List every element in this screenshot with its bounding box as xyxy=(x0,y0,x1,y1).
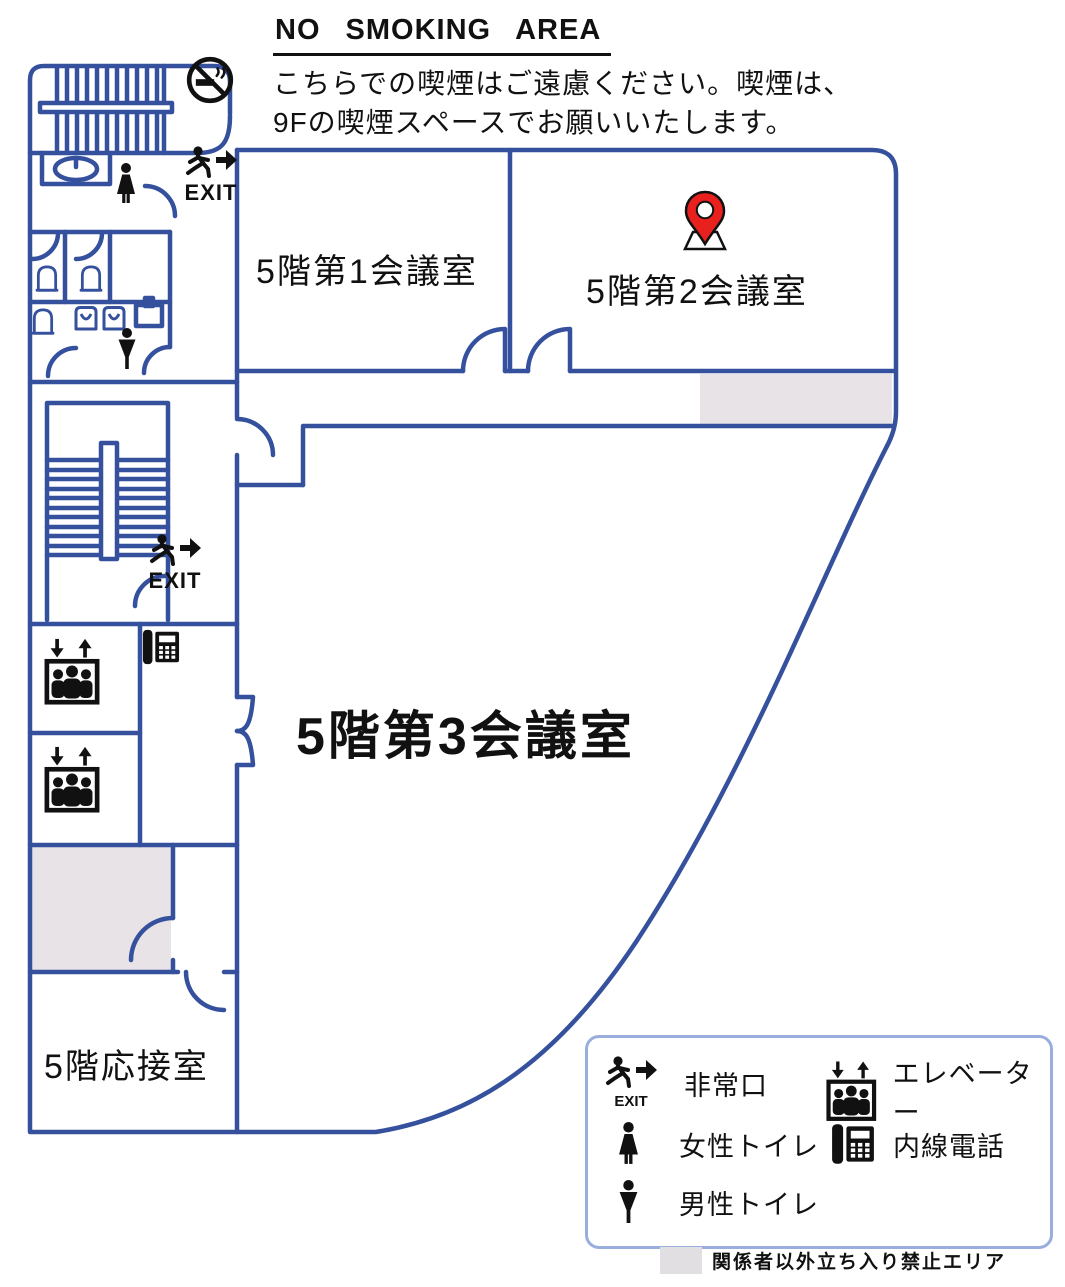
phone-icon xyxy=(143,630,179,664)
room2-label: 5階第2会議室 xyxy=(586,264,808,313)
legend-label: 女性トイレ xyxy=(679,1125,819,1164)
exit-text: EXIT xyxy=(146,568,204,594)
toilet-fixture xyxy=(36,267,59,290)
toilet-fixture xyxy=(80,267,103,290)
legend-item-elevator: エレベーター xyxy=(826,1052,1050,1130)
exit-text: EXIT xyxy=(182,180,240,206)
legend-label: 内線電話 xyxy=(893,1125,1005,1164)
elevator-icon xyxy=(47,639,97,702)
restricted-room-area xyxy=(32,847,171,970)
no-smoking-description: こちらでの喫煙はご遠慮ください。喫煙は、 9Fの喫煙スペースでお願いいたします。 xyxy=(273,64,852,142)
walls xyxy=(30,66,896,1132)
restricted-area-swatch xyxy=(660,1247,702,1274)
elevator-icon xyxy=(47,747,97,810)
male-toilet-icon xyxy=(618,1180,639,1224)
legend: EXIT 非常口 エレベーター 女性トイレ 内線電話 男性トイレ xyxy=(585,1035,1053,1249)
page-title: NO SMOKING AREA xyxy=(273,14,611,56)
room3-label: 5階第3会議室 xyxy=(296,694,635,769)
floor-map-page: NO SMOKING AREA こちらでの喫煙はご遠慮ください。喫煙は、 9Fの… xyxy=(0,0,1065,1287)
phone-icon xyxy=(831,1122,875,1166)
upper-stairs xyxy=(40,66,172,153)
toilet-fixture xyxy=(32,310,55,333)
legend-label: 非常口 xyxy=(684,1064,768,1103)
elevator-icon xyxy=(826,1059,877,1123)
description-line-2: 9Fの喫煙スペースでお願いいたします。 xyxy=(273,103,852,142)
legend-item-phone: 内線電話 xyxy=(831,1122,1005,1166)
emergency-exit-icon: EXIT xyxy=(604,1056,658,1110)
description-line-1: こちらでの喫煙はご遠慮ください。喫煙は、 xyxy=(273,64,852,103)
restricted-areas xyxy=(32,374,892,970)
legend-item-female-toilet: 女性トイレ xyxy=(618,1122,819,1166)
location-pin-icon xyxy=(685,192,725,249)
female-toilet-icon xyxy=(117,163,135,203)
male-toilet-icon xyxy=(119,328,136,369)
restricted-area-note: 関係者以外立ち入り禁止エリア xyxy=(660,1247,1006,1274)
room1-label: 5階第1会議室 xyxy=(256,244,478,293)
restricted-corridor-area xyxy=(700,374,892,424)
urinal-fixture xyxy=(104,308,124,330)
legend-label: 男性トイレ xyxy=(679,1183,819,1222)
urinal-fixture xyxy=(76,308,96,330)
legend-label: エレベーター xyxy=(893,1052,1050,1130)
exit-text: EXIT xyxy=(604,1093,658,1110)
female-toilet-icon xyxy=(618,1122,639,1166)
legend-item-emergency-exit: EXIT 非常口 xyxy=(604,1056,768,1110)
exit-runner-icon xyxy=(152,534,201,564)
legend-item-male-toilet: 男性トイレ xyxy=(618,1180,819,1224)
restricted-area-text: 関係者以外立ち入り禁止エリア xyxy=(712,1247,1006,1274)
reception-room-label: 5階応接室 xyxy=(44,1039,209,1088)
